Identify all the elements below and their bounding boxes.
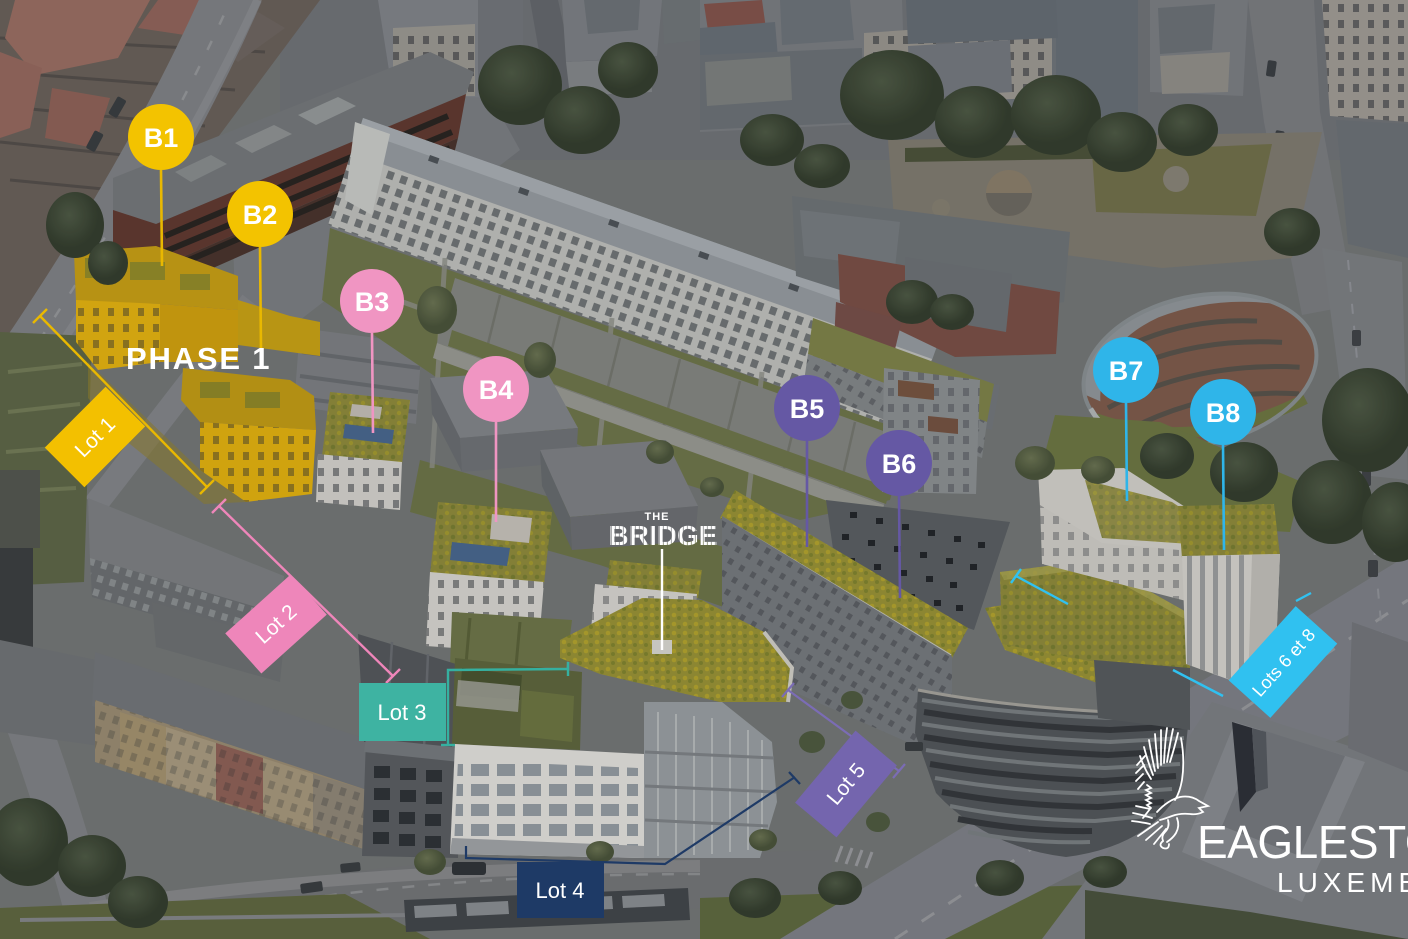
svg-text:EAGLESTONE: EAGLESTONE xyxy=(1197,816,1408,868)
svg-text:B7: B7 xyxy=(1109,356,1144,386)
svg-text:B3: B3 xyxy=(355,287,390,317)
svg-text:B4: B4 xyxy=(479,375,514,405)
svg-text:BRIDGE: BRIDGE xyxy=(609,520,718,551)
svg-text:Lot 3: Lot 3 xyxy=(378,700,427,725)
svg-text:B6: B6 xyxy=(882,449,917,479)
svg-text:B2: B2 xyxy=(243,200,278,230)
svg-text:B8: B8 xyxy=(1206,398,1241,428)
svg-text:LUXEMBOURG: LUXEMBOURG xyxy=(1277,867,1408,898)
svg-text:Lot 4: Lot 4 xyxy=(536,878,585,903)
svg-text:B5: B5 xyxy=(790,394,825,424)
svg-text:PHASE 1: PHASE 1 xyxy=(126,341,271,376)
svg-text:B1: B1 xyxy=(144,123,179,153)
